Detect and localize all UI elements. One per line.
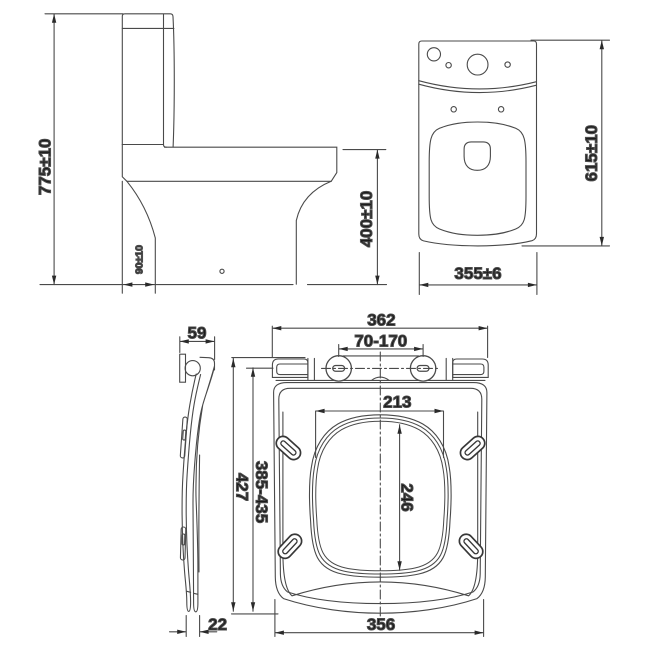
svg-text:22: 22	[208, 615, 227, 634]
svg-text:355±6: 355±6	[454, 264, 501, 283]
svg-text:400±10: 400±10	[357, 191, 376, 248]
svg-text:385-435: 385-435	[252, 461, 271, 523]
svg-text:90±10: 90±10	[134, 245, 146, 274]
svg-text:362: 362	[367, 311, 395, 330]
svg-text:246: 246	[397, 483, 416, 511]
svg-text:356: 356	[367, 615, 395, 634]
svg-text:775±10: 775±10	[36, 138, 55, 195]
svg-text:615±10: 615±10	[582, 125, 601, 182]
svg-text:59: 59	[188, 323, 207, 342]
svg-text:213: 213	[383, 393, 411, 412]
svg-text:70-170: 70-170	[354, 331, 407, 350]
svg-text:427: 427	[232, 473, 251, 501]
